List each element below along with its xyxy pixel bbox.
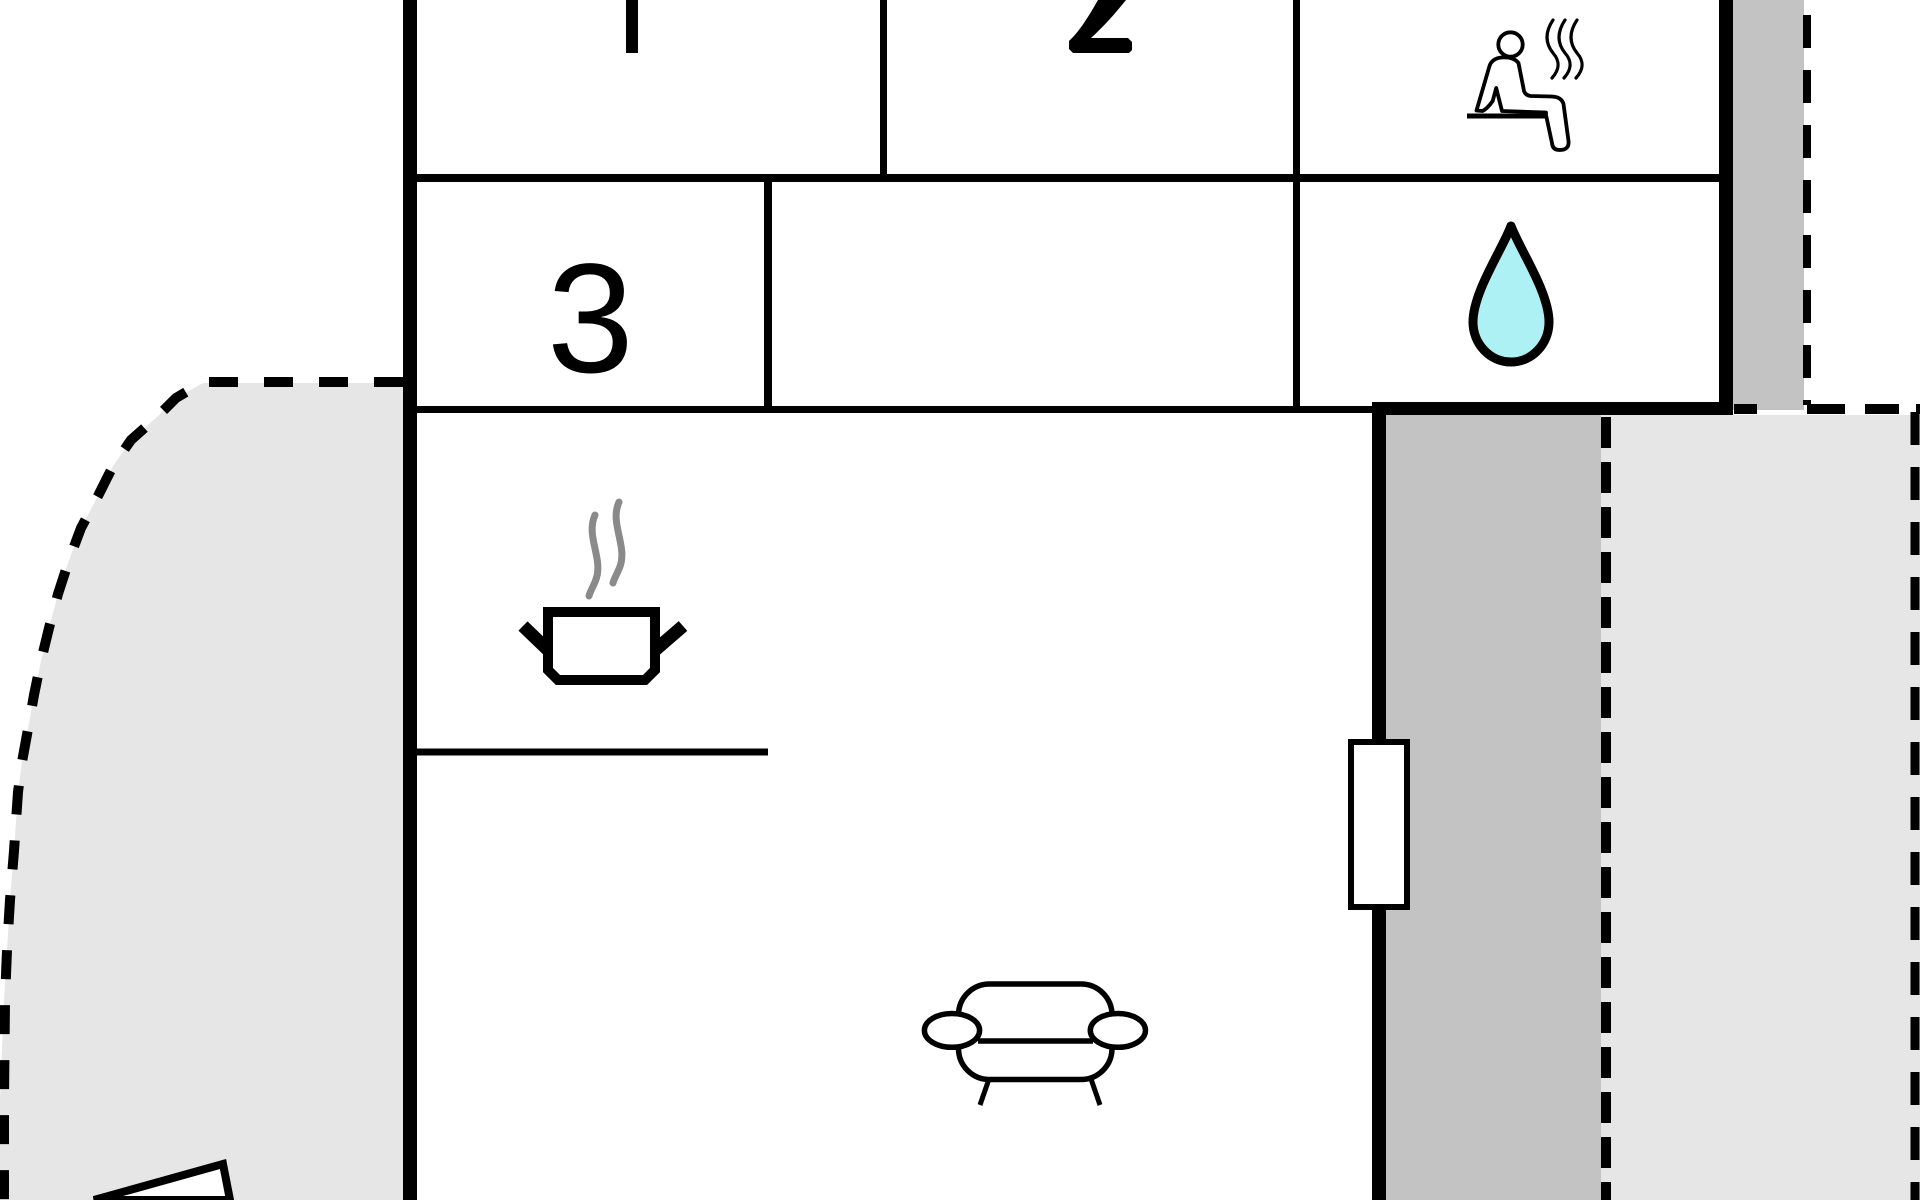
svg-text:3: 3: [547, 232, 634, 406]
